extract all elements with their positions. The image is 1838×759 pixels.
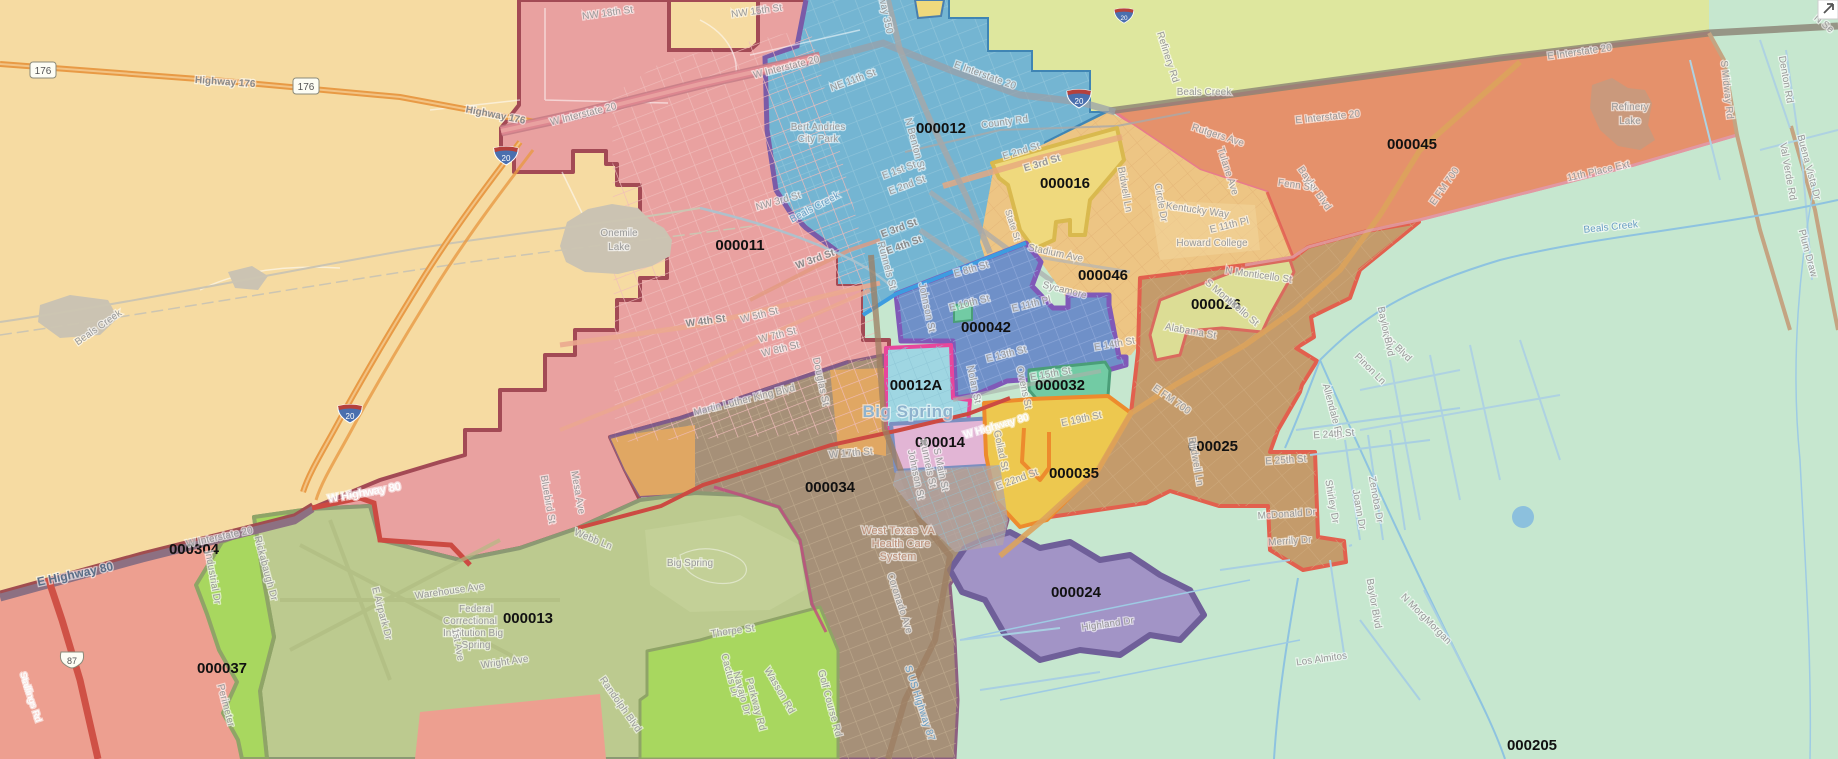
svg-text:000045: 000045 (1387, 136, 1437, 153)
svg-text:Correctional: Correctional (443, 616, 497, 627)
svg-text:176: 176 (298, 82, 315, 93)
svg-text:000024: 000024 (1051, 584, 1102, 601)
svg-text:City Park: City Park (798, 134, 840, 145)
svg-text:West Texas VA: West Texas VA (861, 525, 935, 537)
svg-text:Federal: Federal (459, 604, 493, 615)
svg-text:000035: 000035 (1049, 465, 1099, 482)
svg-text:Big Spring: Big Spring (667, 558, 713, 569)
svg-text:000013: 000013 (503, 610, 553, 627)
svg-text:Big Spring: Big Spring (863, 402, 954, 421)
svg-text:Beals Creek: Beals Creek (1177, 87, 1232, 98)
svg-text:Onemile: Onemile (600, 228, 638, 239)
svg-text:000011: 000011 (715, 237, 764, 254)
svg-text:System: System (880, 551, 917, 563)
svg-text:000034: 000034 (805, 479, 856, 496)
svg-text:000012: 000012 (916, 120, 966, 137)
svg-text:000046: 000046 (1078, 267, 1128, 284)
svg-text:20: 20 (1120, 15, 1128, 22)
svg-text:Howard College: Howard College (1176, 238, 1248, 249)
svg-text:20: 20 (1075, 97, 1084, 106)
svg-text:176: 176 (35, 66, 52, 77)
svg-text:20: 20 (346, 412, 355, 421)
svg-text:000037: 000037 (197, 660, 247, 677)
svg-text:Lake: Lake (608, 242, 630, 253)
svg-text:00012A: 00012A (890, 377, 943, 394)
svg-text:000016: 000016 (1040, 175, 1090, 192)
svg-text:Lake: Lake (1619, 116, 1641, 127)
svg-text:000042: 000042 (961, 319, 1011, 336)
svg-text:Health Care: Health Care (872, 538, 931, 550)
svg-text:Refinery: Refinery (1611, 102, 1648, 113)
svg-text:20: 20 (502, 154, 511, 163)
svg-text:87: 87 (67, 656, 77, 666)
svg-text:000205: 000205 (1507, 737, 1557, 754)
svg-text:Spring: Spring (462, 640, 491, 651)
svg-text:Bert Andries: Bert Andries (791, 122, 845, 133)
